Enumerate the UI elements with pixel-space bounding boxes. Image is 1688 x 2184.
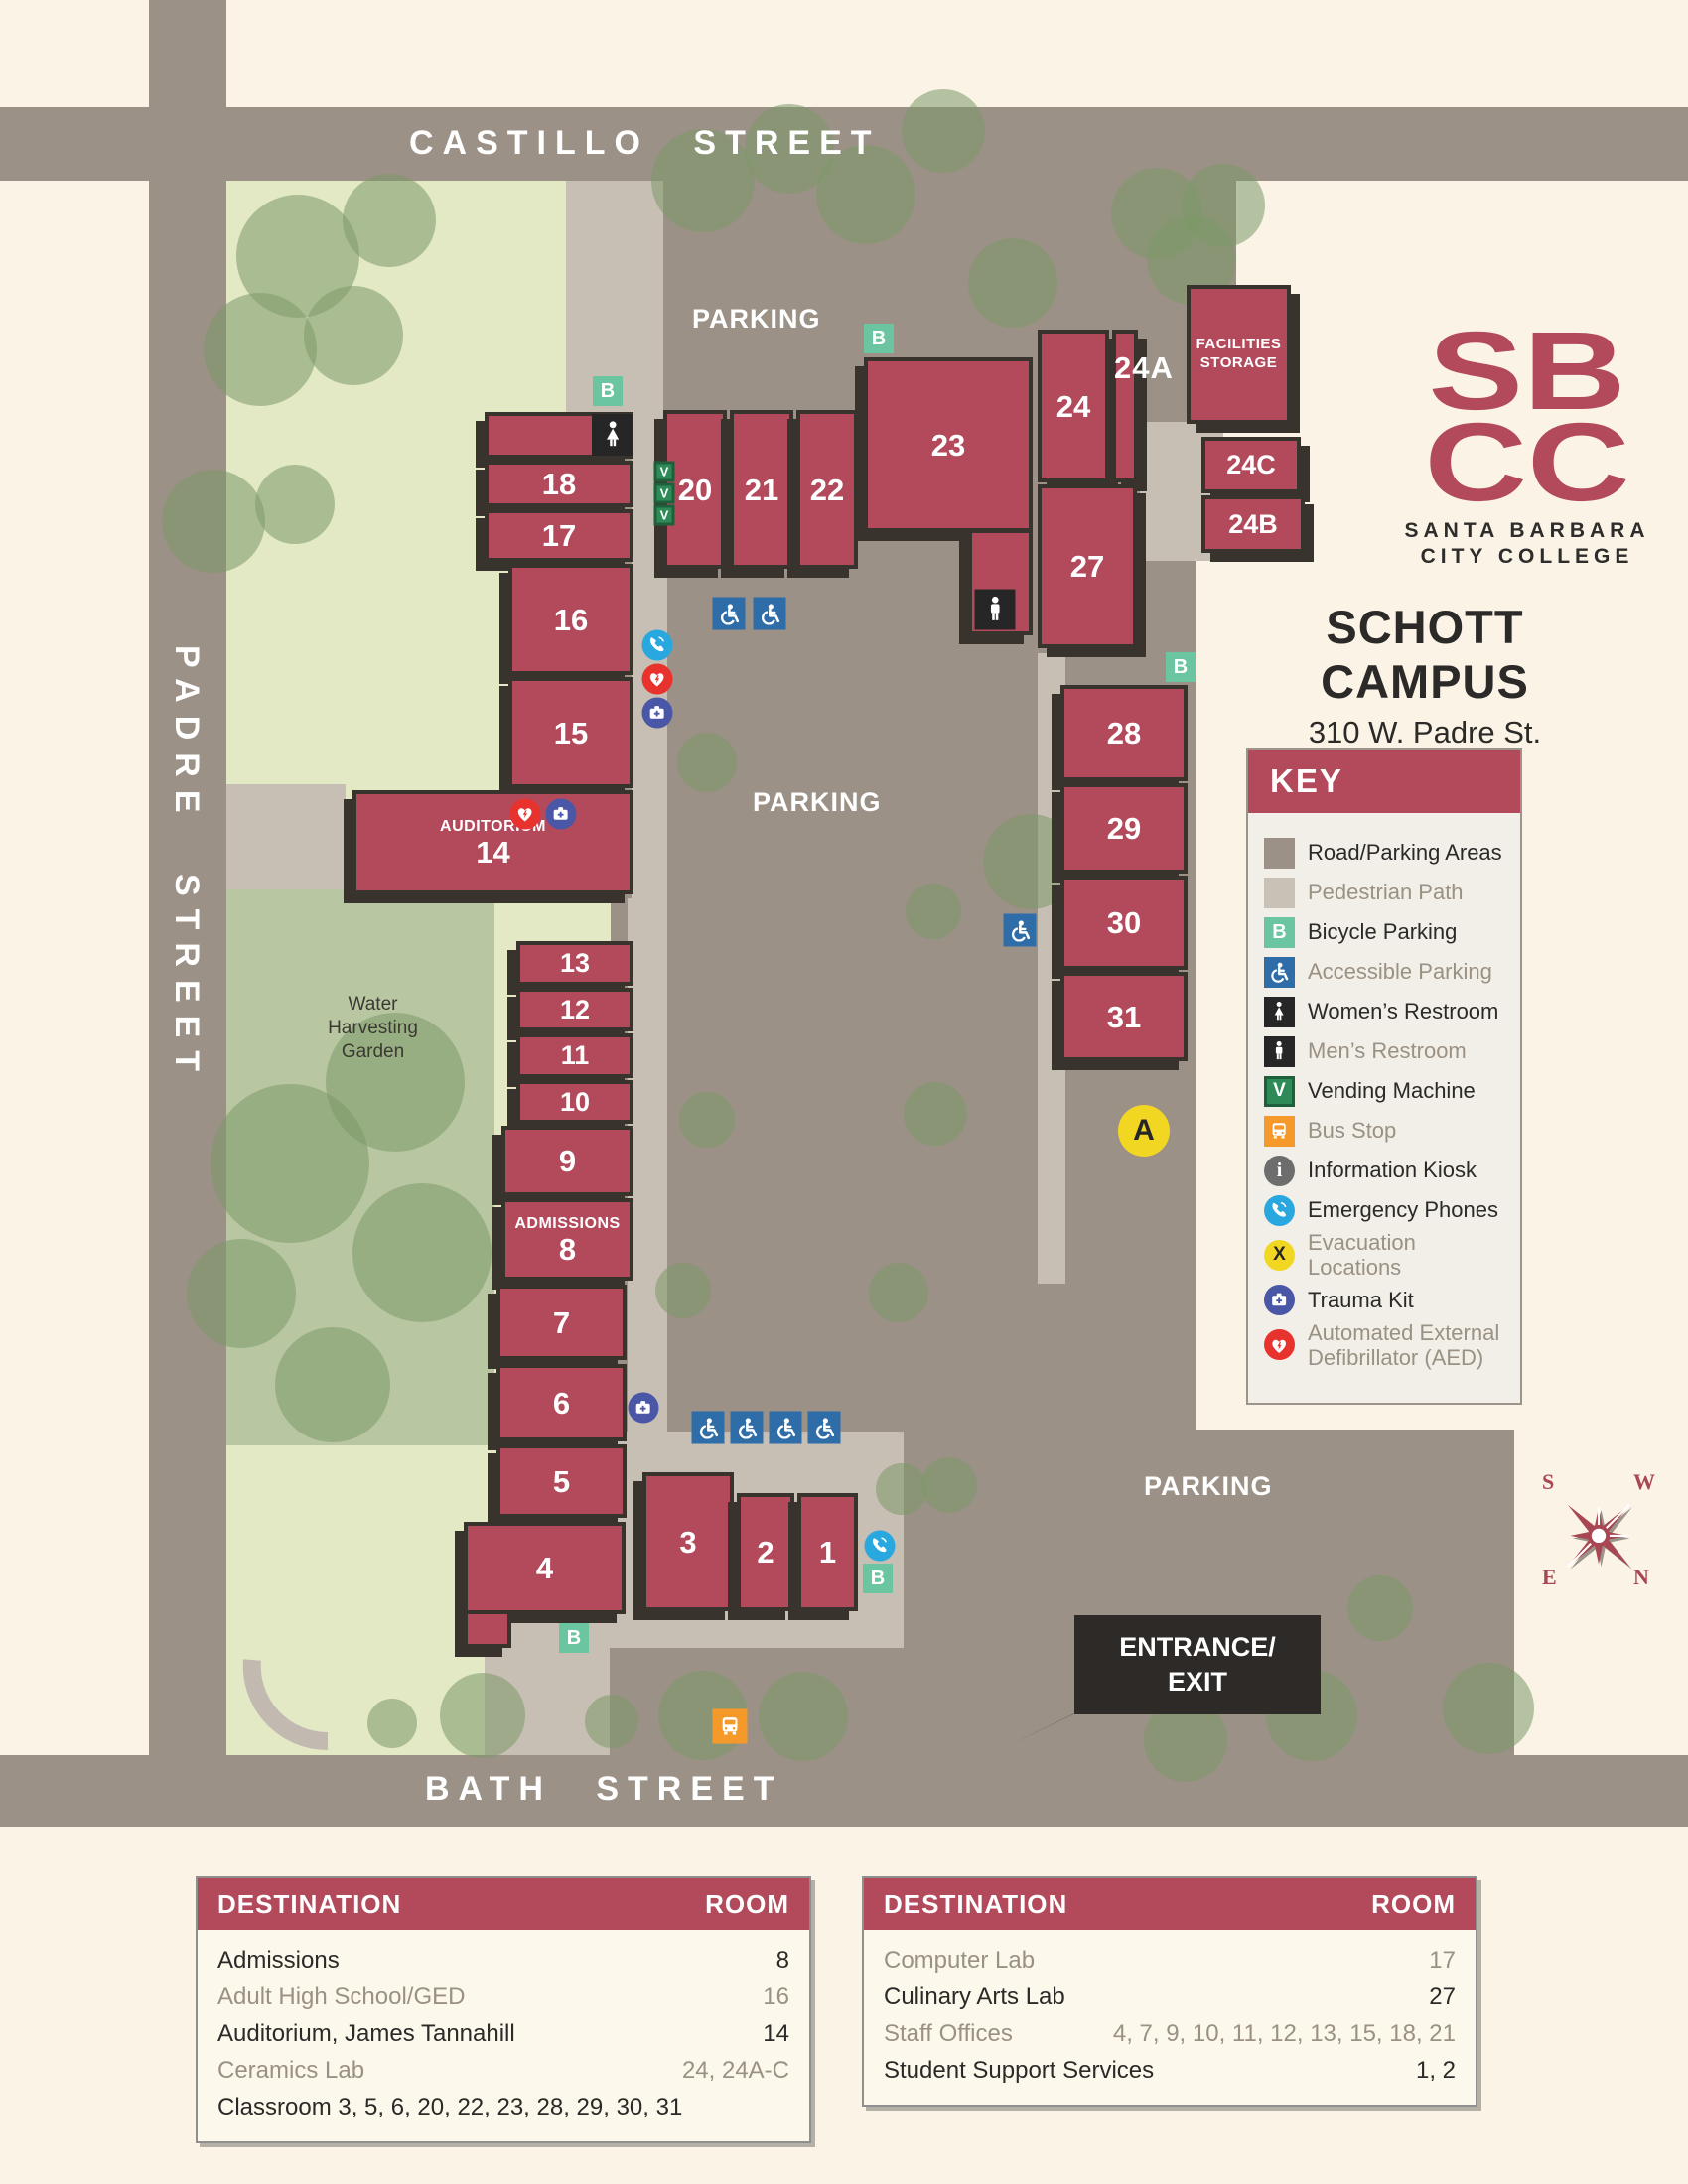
building-24A-number: 24A	[1114, 350, 1174, 386]
accessible-parking-icon	[808, 1412, 841, 1444]
table-row: Admissions8	[217, 1942, 789, 1979]
building-28: 28	[1060, 685, 1188, 781]
room-header: ROOM	[1371, 1889, 1456, 1920]
building-20-number: 20	[678, 475, 712, 505]
bath-street-label: BATH STREET	[425, 1770, 782, 1809]
key-item-women: Women’s Restroom	[1264, 992, 1506, 1031]
evacuation-location-a-icon: A	[1118, 1105, 1170, 1157]
accessible-parking-icon	[731, 1412, 764, 1444]
compass-letter-w: W	[1633, 1469, 1655, 1495]
key-items: Road/Parking AreasPedestrian PathBBicycl…	[1248, 813, 1520, 1370]
trauma-kit-icon	[546, 799, 577, 830]
vending-machine-icon: V	[654, 462, 675, 482]
tree	[211, 1084, 369, 1243]
building-7-number: 7	[553, 1307, 570, 1338]
mens-restroom-icon	[1264, 1036, 1295, 1067]
building-24C: 24C	[1201, 437, 1301, 493]
building-facilities-storage: FACILITIESSTORAGE	[1187, 285, 1291, 424]
building-8: ADMISSIONS8	[501, 1198, 633, 1281]
building-18-number: 18	[542, 469, 576, 499]
vending-machine-icon: V	[654, 505, 675, 526]
building-10-number: 10	[560, 1089, 590, 1116]
parking-label-3: PARKING	[1144, 1471, 1273, 1502]
building-5-number: 5	[553, 1466, 570, 1497]
table-body: Admissions8Adult High School/GED16Audito…	[198, 1930, 809, 2141]
key-item-evac: XEvacuation Locations	[1264, 1230, 1506, 1281]
key-item-label: Men’s Restroom	[1308, 1038, 1467, 1063]
building-24B-number: 24B	[1228, 511, 1278, 538]
table-header: DESTINATION ROOM	[198, 1878, 809, 1930]
room-number: 24, 24A-C	[662, 2052, 789, 2089]
vending-machine-icon: V	[1264, 1076, 1295, 1107]
castillo-street-label: CASTILLO STREET	[409, 124, 881, 163]
building-1-number: 1	[819, 1537, 836, 1568]
aed-icon	[1264, 1329, 1295, 1360]
tree	[904, 1082, 967, 1146]
room-number: 1, 2	[1396, 2052, 1456, 2089]
compass-letter-n: N	[1633, 1565, 1649, 1590]
trauma-kit-icon	[1264, 1285, 1295, 1315]
vending-machine-icon: V	[654, 483, 675, 504]
trauma-kit-icon	[629, 1393, 659, 1424]
tree	[367, 1699, 417, 1748]
tree	[876, 1463, 927, 1515]
building-21-number: 21	[745, 475, 778, 505]
logo-sub2: CITY COLLEGE	[1398, 544, 1656, 570]
bicycle-parking-icon: B	[1264, 917, 1295, 948]
destination-name: Adult High School/GED	[217, 1979, 465, 2015]
campus-map-page: { "title": {"campus": "SCHOTT CAMPUS", "…	[0, 0, 1688, 2184]
logo-line2: CC	[1362, 417, 1688, 508]
aed-icon	[510, 799, 541, 830]
room-header: ROOM	[705, 1889, 789, 1920]
building-30-number: 30	[1107, 907, 1141, 938]
accessible-parking-icon	[1004, 914, 1037, 947]
tree	[255, 465, 335, 544]
destination-name: Classroom 3, 5, 6, 20, 22, 23, 28, 29, 3…	[217, 2089, 682, 2125]
compass-rose: S W E N	[1534, 1467, 1663, 1596]
mens-restroom-icon	[975, 590, 1016, 630]
key-item-road: Road/Parking Areas	[1264, 833, 1506, 873]
building-22: 22	[796, 410, 858, 569]
table-header: DESTINATION ROOM	[864, 1878, 1476, 1930]
building-23: 23	[864, 357, 1033, 532]
entrance-line1: ENTRANCE/	[1119, 1630, 1276, 1665]
building-27-number: 27	[1070, 551, 1104, 582]
building-21: 21	[730, 410, 793, 569]
key-item-phone: Emergency Phones	[1264, 1190, 1506, 1230]
bicycle-parking-icon: B	[1166, 652, 1196, 682]
room-number: 14	[743, 2015, 789, 2052]
key-item-info: iInformation Kiosk	[1264, 1151, 1506, 1190]
building-24B: 24B	[1201, 495, 1305, 553]
table-row: Auditorium, James Tannahill14	[217, 2015, 789, 2052]
tree	[275, 1327, 390, 1442]
page-title: SCHOTT CAMPUS	[1216, 600, 1633, 709]
building-6-number: 6	[553, 1388, 570, 1419]
garden-label-line1: Water	[286, 993, 460, 1017]
building-8-number: 8	[559, 1234, 576, 1265]
accessible-parking-icon	[754, 598, 786, 630]
destination-name: Student Support Services	[884, 2052, 1154, 2089]
key-item-label: Automated External Defibrillator (AED)	[1308, 1320, 1506, 1371]
room-number: 17	[1409, 1942, 1456, 1979]
accessible-parking-icon	[770, 1412, 802, 1444]
building-10: 10	[516, 1080, 633, 1124]
garden-label-line2: Harvesting	[286, 1017, 460, 1040]
building-24: 24	[1038, 330, 1109, 482]
room-number: 16	[743, 1979, 789, 2015]
logo-subtitle: SANTA BARBARA CITY COLLEGE	[1398, 518, 1656, 571]
tree	[655, 1263, 711, 1318]
building-9-number: 9	[559, 1146, 576, 1176]
entrance-line2: EXIT	[1168, 1665, 1227, 1700]
emergency-phone-icon	[642, 630, 673, 661]
building-7: 7	[496, 1285, 627, 1360]
key-item-label: Vending Machine	[1308, 1078, 1476, 1103]
key-item-label: Bus Stop	[1308, 1118, 1396, 1143]
key-item-aed: Automated External Defibrillator (AED)	[1264, 1320, 1506, 1371]
destination-header: DESTINATION	[217, 1889, 401, 1920]
tree	[869, 1263, 928, 1322]
parking-label-1: PARKING	[692, 304, 821, 335]
building-4-number: 4	[536, 1553, 553, 1583]
building-29: 29	[1060, 783, 1188, 874]
campus-title-block: SCHOTT CAMPUS 310 W. Padre St.	[1216, 600, 1633, 751]
garden-label-line3: Garden	[286, 1040, 460, 1064]
destination-table-right: DESTINATION ROOM Computer Lab17Culinary …	[862, 1876, 1477, 2107]
building-14: AUDITORIUM14	[352, 790, 633, 894]
key-header: KEY	[1248, 750, 1520, 813]
key-item-label: Accessible Parking	[1308, 959, 1492, 984]
key-item-label: Women’s Restroom	[1308, 999, 1498, 1024]
key-item-trauma: Trauma Kit	[1264, 1281, 1506, 1320]
key-item-label: Information Kiosk	[1308, 1158, 1477, 1182]
campus-address: 310 W. Padre St.	[1216, 715, 1633, 751]
building-12: 12	[516, 988, 633, 1031]
tree	[187, 1239, 296, 1348]
compass-letter-e: E	[1542, 1565, 1557, 1590]
building-28-number: 28	[1107, 718, 1141, 749]
destination-name: Culinary Arts Lab	[884, 1979, 1065, 2015]
building-4: 4	[464, 1522, 626, 1614]
tree	[440, 1673, 525, 1758]
building-12-number: 12	[560, 997, 590, 1024]
building-15: 15	[508, 677, 633, 788]
tree	[902, 89, 985, 173]
building-15-number: 15	[554, 718, 588, 749]
building-29-number: 29	[1107, 813, 1141, 844]
water-harvesting-garden-label: Water Harvesting Garden	[286, 993, 460, 1063]
accessible-parking-icon	[713, 598, 746, 630]
womens-restroom-icon	[592, 414, 633, 456]
building-8-sublabel: ADMISSIONS	[514, 1214, 620, 1234]
table-row: Ceramics Lab24, 24A-C	[217, 2052, 789, 2089]
trauma-kit-icon	[642, 698, 673, 729]
building-1: 1	[797, 1493, 858, 1611]
building-18: 18	[485, 461, 633, 507]
building-14-number: 14	[476, 837, 509, 868]
building-16-number: 16	[554, 605, 588, 635]
tree	[679, 1092, 735, 1148]
accessible-parking-icon	[692, 1412, 725, 1444]
bus-stop-icon	[1264, 1116, 1295, 1147]
tree	[585, 1695, 638, 1748]
destination-name: Auditorium, James Tannahill	[217, 2015, 515, 2052]
building-6: 6	[496, 1364, 627, 1441]
key-item-label: Bicycle Parking	[1308, 919, 1457, 944]
bicycle-parking-icon: B	[863, 1564, 893, 1593]
tree	[162, 470, 265, 573]
bath-street-road	[0, 1755, 1688, 1827]
building-31-number: 31	[1107, 1002, 1141, 1032]
path-swatch-icon	[1264, 878, 1295, 908]
tree	[204, 293, 317, 406]
table-row: Adult High School/GED16	[217, 1979, 789, 2015]
information-kiosk-icon: i	[1264, 1156, 1295, 1186]
table-row: Classroom 3, 5, 6, 20, 22, 23, 28, 29, 3…	[217, 2089, 789, 2125]
tree	[1443, 1663, 1534, 1754]
pedestrian-path-padre-entry	[226, 784, 346, 889]
building-22-number: 22	[810, 475, 844, 505]
table-row: Culinary Arts Lab27	[884, 1979, 1456, 2015]
key-item-label: Trauma Kit	[1308, 1288, 1414, 1312]
road-swatch-icon	[1264, 838, 1295, 869]
building-24C-number: 24C	[1226, 452, 1276, 478]
building-3-number: 3	[679, 1527, 696, 1558]
building-9: 9	[501, 1126, 633, 1196]
building-17: 17	[485, 509, 633, 562]
destination-table-left: DESTINATION ROOM Admissions8Adult High S…	[196, 1876, 811, 2143]
tree	[921, 1457, 977, 1513]
destination-name: Ceramics Lab	[217, 2052, 364, 2089]
key-item-label: Evacuation Locations	[1308, 1230, 1506, 1281]
tree	[968, 238, 1057, 328]
table-row: Computer Lab17	[884, 1942, 1456, 1979]
bus-stop-icon	[713, 1709, 748, 1744]
tree	[759, 1672, 848, 1761]
key-item-label: Road/Parking Areas	[1308, 840, 1502, 865]
building-2-number: 2	[757, 1537, 774, 1568]
key-item-path: Pedestrian Path	[1264, 873, 1506, 912]
building-23-number: 23	[931, 430, 965, 461]
building-30: 30	[1060, 876, 1188, 970]
destination-name: Staff Offices	[884, 2015, 1013, 2052]
building-2: 2	[737, 1493, 794, 1611]
table-body: Computer Lab17Culinary Arts Lab27Staff O…	[864, 1930, 1476, 2105]
key-item-bus: Bus Stop	[1264, 1111, 1506, 1151]
room-number: 27	[1409, 1979, 1456, 2015]
bicycle-parking-icon: B	[864, 324, 894, 353]
building-4-annex	[464, 1610, 511, 1648]
bicycle-parking-icon: B	[593, 376, 623, 406]
building-13-number: 13	[560, 950, 590, 977]
destination-name: Computer Lab	[884, 1942, 1035, 1979]
emergency-phone-icon	[865, 1531, 896, 1562]
sbcc-logo: SB CC SANTA BARBARA CITY COLLEGE	[1398, 326, 1656, 571]
bicycle-parking-icon: B	[559, 1623, 589, 1653]
tree	[677, 733, 737, 792]
evacuation-location-icon: X	[1264, 1240, 1295, 1271]
key-item-access: Accessible Parking	[1264, 952, 1506, 992]
aed-icon	[642, 664, 673, 695]
building-27: 27	[1038, 484, 1137, 648]
womens-restroom-icon	[1264, 997, 1295, 1027]
destination-header: DESTINATION	[884, 1889, 1067, 1920]
key-item-label: Emergency Phones	[1308, 1197, 1498, 1222]
key-item-vend: VVending Machine	[1264, 1071, 1506, 1111]
emergency-phone-icon	[1264, 1195, 1295, 1226]
building-11-number: 11	[561, 1042, 590, 1069]
tree	[352, 1183, 492, 1322]
building-3: 3	[642, 1472, 734, 1611]
tree	[906, 884, 961, 939]
building-facilities-storage-label: STORAGE	[1200, 354, 1277, 373]
padre-street-label: PADRE STREET	[167, 645, 206, 1084]
compass-letter-s: S	[1542, 1469, 1554, 1495]
building-5: 5	[496, 1444, 627, 1518]
map-key-legend: KEY Road/Parking AreasPedestrian PathBBi…	[1246, 748, 1522, 1405]
building-31: 31	[1060, 972, 1188, 1061]
curved-garden-path	[240, 1650, 350, 1759]
table-row: Staff Offices4, 7, 9, 10, 11, 12, 13, 15…	[884, 2015, 1456, 2052]
accessible-parking-icon	[1264, 957, 1295, 988]
building-24-number: 24	[1056, 391, 1090, 422]
room-number: 4, 7, 9, 10, 11, 12, 13, 15, 18, 21	[1093, 2015, 1456, 2052]
key-item-label: Pedestrian Path	[1308, 880, 1464, 904]
table-row: Student Support Services1, 2	[884, 2052, 1456, 2089]
building-13: 13	[516, 941, 633, 986]
parking-label-2: PARKING	[753, 787, 882, 818]
building-16: 16	[508, 564, 633, 675]
destination-name: Admissions	[217, 1942, 340, 1979]
building-11: 11	[516, 1033, 633, 1078]
tree	[304, 286, 403, 385]
tree	[343, 174, 436, 267]
entrance-exit-sign: ENTRANCE/ EXIT	[1074, 1615, 1321, 1714]
tree	[1347, 1575, 1413, 1641]
building-facilities-storage-label: FACILITIES	[1196, 336, 1282, 354]
room-number: 8	[757, 1942, 789, 1979]
key-item-men: Men’s Restroom	[1264, 1031, 1506, 1071]
key-item-bike: BBicycle Parking	[1264, 912, 1506, 952]
building-17-number: 17	[542, 520, 576, 551]
